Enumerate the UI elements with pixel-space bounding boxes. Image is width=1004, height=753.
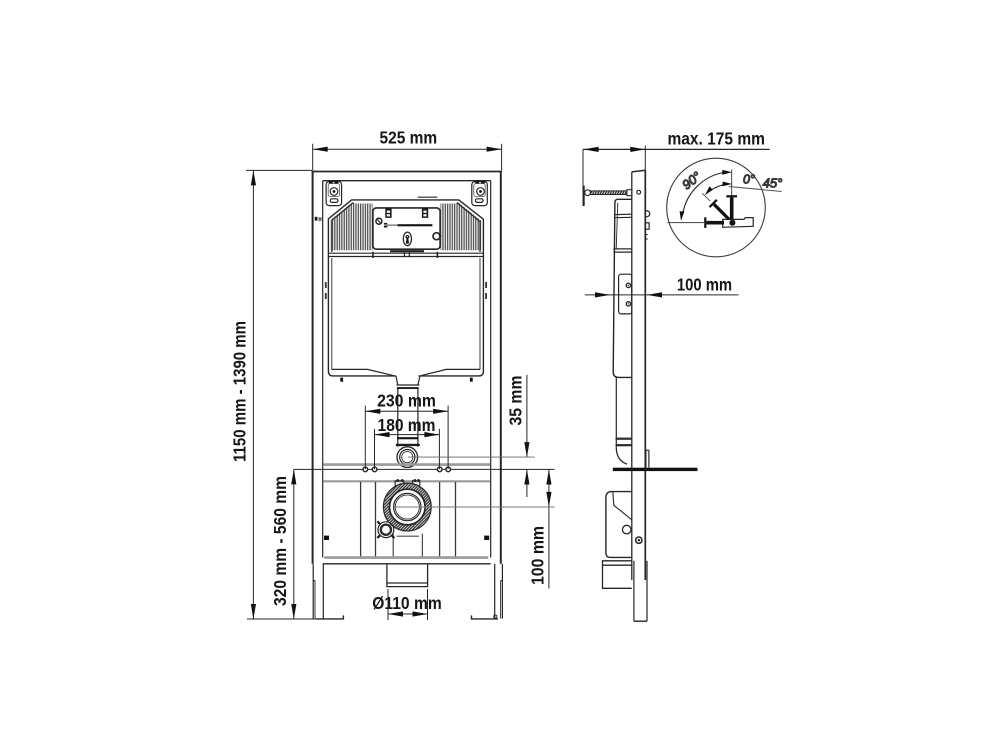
svg-text:1150 mm - 1390 mm: 1150 mm - 1390 mm — [230, 321, 250, 462]
svg-text:320 mm - 560 mm: 320 mm - 560 mm — [270, 476, 290, 606]
svg-text:525 mm: 525 mm — [380, 128, 438, 148]
svg-text:max. 175 mm: max. 175 mm — [667, 129, 765, 149]
svg-text:0°: 0° — [743, 172, 755, 186]
svg-text:45°: 45° — [763, 175, 783, 190]
svg-text:100 mm: 100 mm — [528, 526, 548, 585]
svg-text:100 mm: 100 mm — [677, 275, 732, 295]
svg-text:180 mm: 180 mm — [378, 415, 436, 435]
svg-text:Ø110 mm: Ø110 mm — [372, 593, 441, 613]
svg-text:230 mm: 230 mm — [377, 391, 436, 411]
svg-text:35 mm: 35 mm — [506, 376, 526, 426]
